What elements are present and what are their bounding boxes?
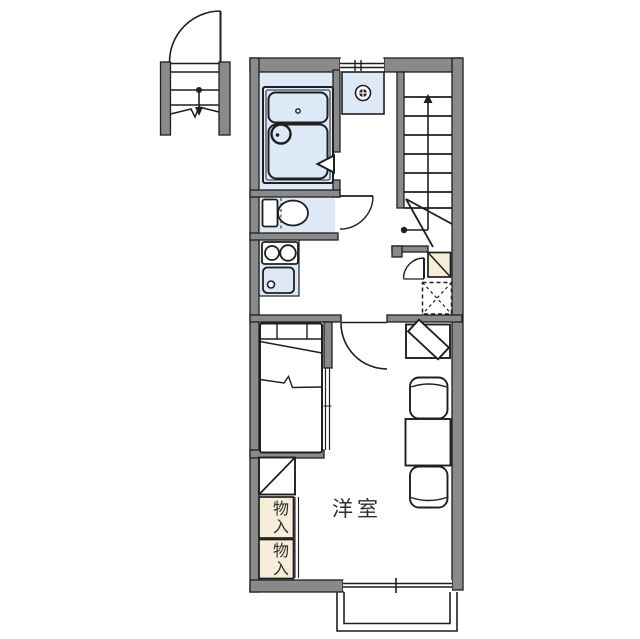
staircase xyxy=(401,94,452,247)
storage-lower-label: 物入 xyxy=(267,542,291,578)
wall-top-left xyxy=(250,58,340,72)
floor-plan-drawing xyxy=(0,0,640,639)
bathroom-bottom-wall xyxy=(250,190,340,197)
wall-bottom-left xyxy=(250,580,343,592)
floor-plan: 洋室 物入 物入 xyxy=(0,0,640,639)
top-window-opening xyxy=(340,59,384,71)
main-room-label: 洋室 xyxy=(332,493,382,523)
wall-right xyxy=(452,58,463,590)
understair-wall-stub xyxy=(392,246,402,257)
washing-machine xyxy=(356,86,371,101)
stair-arrow-head-up-icon xyxy=(424,94,433,103)
top-window xyxy=(340,59,384,71)
wall-left xyxy=(250,58,259,592)
dining-table xyxy=(406,419,451,466)
balcony-inner-rail xyxy=(344,592,450,624)
sink-drain-icon xyxy=(268,281,275,288)
chair-lower xyxy=(410,467,448,508)
unit-entry xyxy=(404,253,452,315)
toilet-bottom-wall xyxy=(250,233,338,240)
entrance-door-swing-arc xyxy=(170,11,221,62)
wall-top-right xyxy=(384,58,462,72)
washbasin-tap-dot xyxy=(276,133,280,137)
stair-left-wall xyxy=(397,72,404,208)
toilet-tank xyxy=(263,200,278,227)
balcony-outer-rail xyxy=(337,592,457,631)
sliding-partition xyxy=(324,368,332,450)
stove-burner-icon xyxy=(280,245,296,261)
toilet-bowl-icon xyxy=(278,201,308,226)
toilet-door-swing-arc xyxy=(340,196,373,229)
storage-upper-label: 物入 xyxy=(267,500,291,536)
entrance-wall-right xyxy=(219,62,230,135)
living-furniture xyxy=(406,320,451,508)
hall-room-wall-right xyxy=(387,315,462,322)
entry-door-swing-arc xyxy=(404,258,425,279)
bed-alcove-partition xyxy=(324,322,332,368)
room-door xyxy=(341,316,387,369)
bottom-window-opening xyxy=(343,580,452,591)
hall-room-wall-left xyxy=(250,315,341,322)
bottom-window xyxy=(343,578,452,593)
bathroom-wall-right-upper xyxy=(333,70,340,152)
ground-floor-entrance xyxy=(161,11,231,135)
entrance-wall-left xyxy=(161,62,171,135)
room-door-swing-arc xyxy=(341,323,387,369)
balcony xyxy=(337,592,457,631)
stove-burner-icon xyxy=(265,246,279,260)
kitchen-sink xyxy=(263,268,294,294)
stair-break-line xyxy=(171,107,220,117)
bed xyxy=(260,324,322,453)
washbasin-icon xyxy=(272,125,291,144)
